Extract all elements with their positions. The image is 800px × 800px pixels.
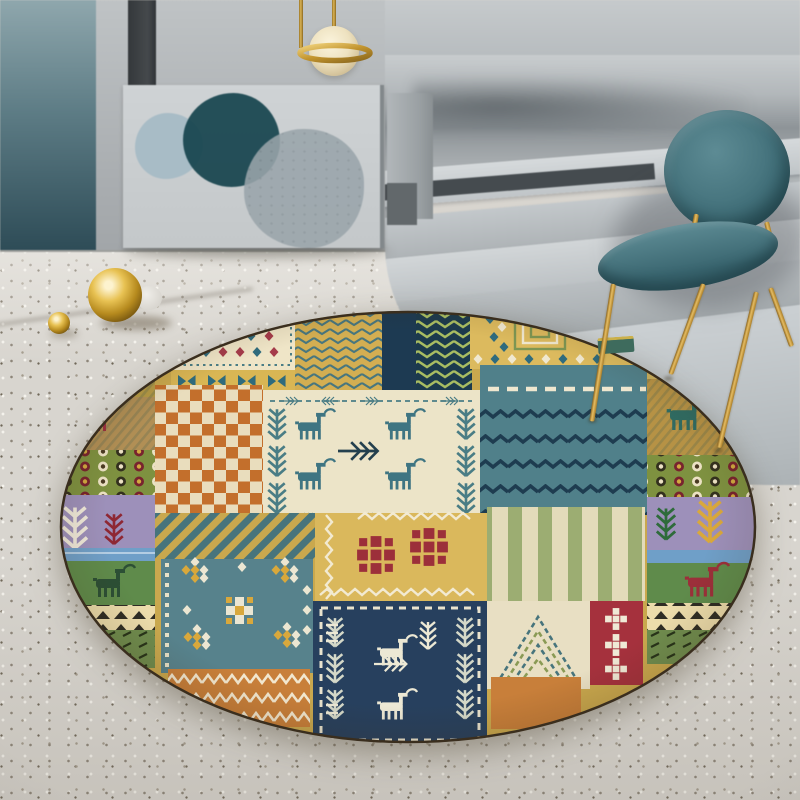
brass-sphere-large [88,268,142,322]
pillar-base [387,183,417,225]
chair-foot-shadow [664,376,673,381]
art-circle-gray [244,129,364,248]
chair-foot-shadow [714,448,723,453]
art-board [123,85,384,248]
interior-scene [0,0,800,800]
frame-edge [128,0,156,90]
wall-upper-right [385,0,800,62]
brass-sphere-small [48,312,70,334]
rug-vignette [60,311,756,743]
pendant-rod [299,0,303,48]
accent-panel [0,0,96,250]
pendant-ring [296,42,374,64]
rug [58,309,758,745]
